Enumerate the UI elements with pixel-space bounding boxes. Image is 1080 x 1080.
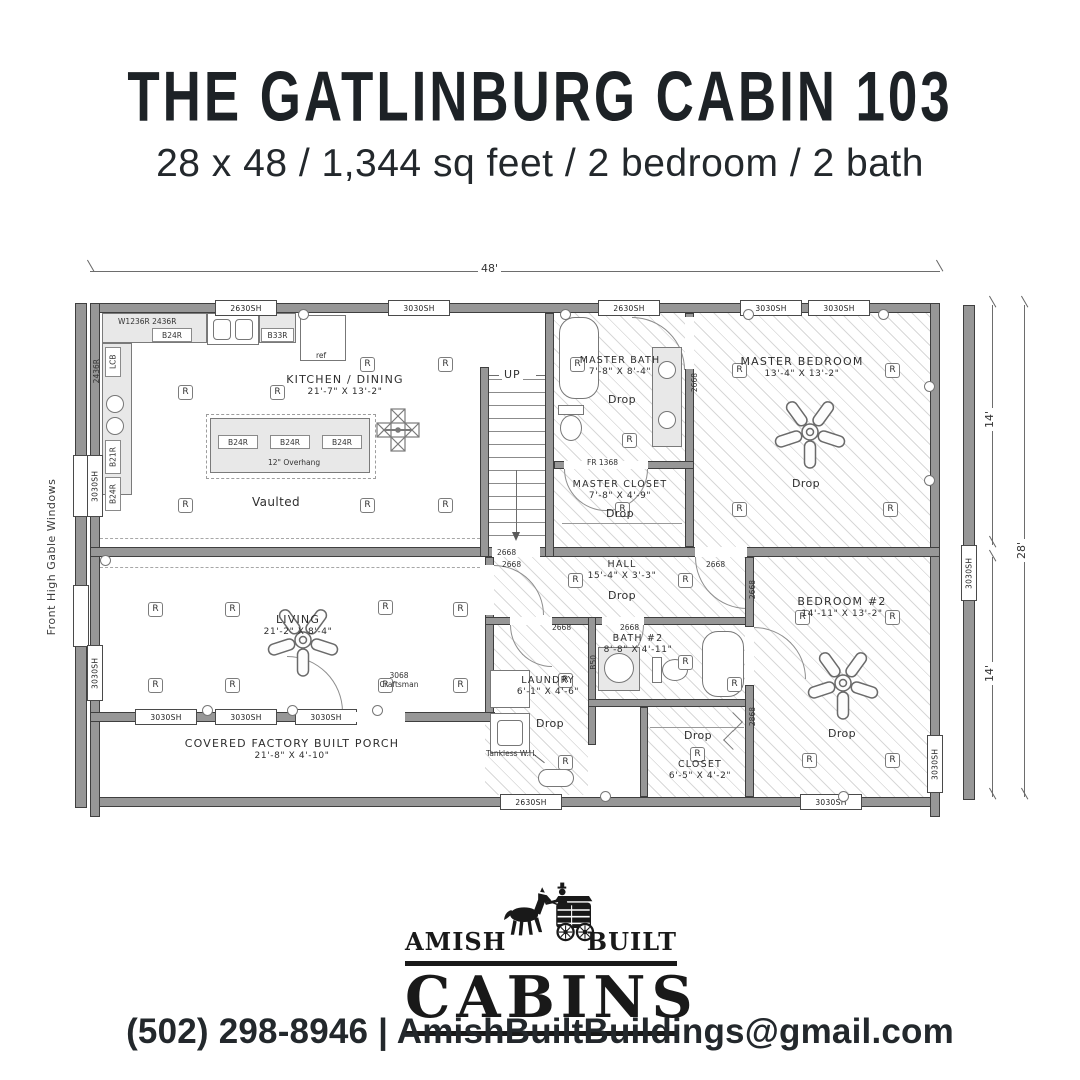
tankless-label: Tankless W.H. bbox=[486, 749, 537, 758]
recessed-light-symbol: R bbox=[453, 602, 468, 617]
header: THE GATLINBURG CABIN 103 28 x 48 / 1,344… bbox=[0, 62, 1080, 186]
ceiling-break-line bbox=[100, 567, 480, 568]
recessed-light-symbol: R bbox=[678, 655, 693, 670]
drop-label: Drop bbox=[536, 717, 564, 730]
room-label-master-bedroom: MASTER BEDROOM 13'-4" X 13'-2" bbox=[740, 355, 863, 379]
drop-label: Drop bbox=[828, 727, 856, 740]
door-label: 2668 bbox=[495, 548, 518, 557]
wall-light-symbol bbox=[878, 309, 889, 320]
recessed-light-symbol: R bbox=[225, 602, 240, 617]
cabinet-label: 2436R bbox=[92, 359, 101, 383]
island-cabinet-label: B24R bbox=[218, 435, 258, 449]
door-gap-hall bbox=[485, 565, 494, 615]
island-cabinet-label: B24R bbox=[270, 435, 310, 449]
recessed-light-symbol: R bbox=[360, 357, 375, 372]
room-name: KITCHEN / DINING bbox=[286, 373, 404, 386]
dim-upper-label: 14' bbox=[983, 408, 996, 431]
cabinet-label: B24R bbox=[105, 477, 121, 511]
gable-window bbox=[73, 585, 89, 647]
recessed-light-symbol: R bbox=[885, 610, 900, 625]
room-label-closet: CLOSET 6'-5" X 4'-2" bbox=[669, 759, 731, 781]
toilet-bowl bbox=[560, 415, 582, 441]
room-dims: 21'-7" X 13'-2" bbox=[286, 387, 404, 397]
room-dims: 21'-2" X 8'-4" bbox=[264, 627, 333, 637]
ceiling-break-line bbox=[100, 538, 480, 539]
cooktop-burner bbox=[106, 395, 124, 413]
wall-light-symbol bbox=[202, 705, 213, 716]
fan-light-symbol bbox=[376, 408, 420, 456]
staircase bbox=[489, 367, 545, 557]
door-label: 2668 bbox=[706, 560, 725, 569]
recessed-light-symbol: R bbox=[568, 573, 583, 588]
room-label-bedroom2: BEDROOM #2 14'-11" X 13'-2" bbox=[797, 595, 886, 619]
drop-label: Drop bbox=[608, 393, 636, 406]
logo-top-row: AMISH bbox=[405, 862, 677, 958]
window: 2630SH bbox=[500, 794, 562, 810]
window: 3030SH bbox=[800, 794, 862, 810]
stair-wall-right bbox=[545, 313, 554, 557]
floor-plan: 48' 14' 14' 28' Front High Gable Windows… bbox=[40, 255, 1045, 850]
wall-cabinet-label: W1236R 2436R bbox=[118, 317, 176, 326]
room-name: MASTER CLOSET bbox=[573, 479, 668, 490]
recessed-light-symbol: R bbox=[453, 678, 468, 693]
cabinet-label: B21R bbox=[105, 440, 121, 474]
window: 3030SH bbox=[388, 300, 450, 316]
vanity-sink bbox=[658, 361, 676, 379]
room-dims: 21'-8" X 4'-10" bbox=[185, 751, 399, 761]
laundry-bath-divider bbox=[588, 617, 596, 745]
room-label-master-closet: MASTER CLOSET 7'-8" X 4'-9" bbox=[573, 479, 668, 501]
dim-lower-label: 14' bbox=[983, 662, 996, 685]
cabinet-label: B24R bbox=[152, 328, 192, 342]
room-name: LAUNDRY bbox=[517, 675, 579, 686]
door-label: 2668 bbox=[690, 373, 699, 392]
recessed-light-symbol: R bbox=[678, 573, 693, 588]
bath2-bottom-wall bbox=[588, 699, 754, 707]
window: 3030SH bbox=[808, 300, 870, 316]
logo-word-right: BUILT bbox=[587, 930, 677, 958]
recessed-light-symbol: R bbox=[802, 753, 817, 768]
recessed-light-symbol: R bbox=[622, 433, 637, 448]
cooktop-burner bbox=[106, 417, 124, 435]
wall-light-symbol bbox=[838, 791, 849, 802]
recessed-light-symbol: R bbox=[438, 357, 453, 372]
wall-light-symbol bbox=[924, 475, 935, 486]
door-label: 2668 bbox=[748, 580, 757, 599]
room-dims: 7'-8" X 8'-4" bbox=[580, 367, 661, 377]
door-gap-master-bath bbox=[685, 317, 694, 369]
cabinet-code: W1236R bbox=[118, 317, 150, 326]
door-label: 2668 bbox=[552, 623, 571, 632]
cabinet-label: B33R bbox=[261, 328, 294, 342]
recessed-light-symbol: R bbox=[438, 498, 453, 513]
door-label: 3068 Craftsman bbox=[376, 671, 422, 690]
room-label-living: LIVING 21'-2" X 8'-4" bbox=[264, 613, 333, 637]
room-dims: 14'-11" X 13'-2" bbox=[797, 609, 886, 619]
cabinet-label: B50 bbox=[589, 655, 598, 670]
window: 3030SH bbox=[87, 455, 103, 517]
window: 3030SH bbox=[215, 709, 277, 725]
room-dims: 7'-8" X 4'-9" bbox=[573, 491, 668, 501]
ceiling-fan-symbol bbox=[770, 392, 850, 476]
toilet-tank bbox=[652, 657, 662, 683]
room-name: MASTER BATH bbox=[580, 355, 661, 366]
horse-and-wagon-icon bbox=[496, 864, 596, 960]
room-label-bath2: BATH #2 8'-8" X 4'-11" bbox=[604, 633, 673, 655]
closet-left-wall bbox=[640, 707, 648, 797]
brand-logo: AMISH bbox=[405, 862, 677, 1036]
room-dims: 6'-1" X 4'-6" bbox=[517, 687, 579, 697]
door-gap-bedroom2 bbox=[745, 627, 754, 683]
dim-tick bbox=[87, 260, 95, 272]
dim-tick bbox=[936, 260, 944, 272]
room-name: LIVING bbox=[264, 613, 333, 626]
window: 3030SH bbox=[135, 709, 197, 725]
drop-label: Drop bbox=[606, 507, 634, 520]
dim-width-label: 48' bbox=[478, 262, 501, 275]
cabinet-label: LCB bbox=[105, 347, 121, 377]
door-gap-laundry bbox=[510, 617, 552, 625]
wall-light-symbol bbox=[372, 705, 383, 716]
vanity-sink bbox=[658, 411, 676, 429]
kitchen-sink bbox=[207, 313, 259, 345]
room-name: BEDROOM #2 bbox=[797, 595, 886, 608]
vaulted-label: Vaulted bbox=[252, 495, 300, 509]
cabinet-code: 2436R bbox=[152, 317, 176, 326]
window: 2630SH bbox=[598, 300, 660, 316]
recessed-light-symbol: R bbox=[148, 678, 163, 693]
room-label-porch: COVERED FACTORY BUILT PORCH 21'-8" X 4'-… bbox=[185, 737, 399, 761]
bedroom2-wall-lower bbox=[745, 685, 754, 797]
recessed-light-symbol: R bbox=[178, 385, 193, 400]
stairs-direction-arrow bbox=[512, 532, 520, 541]
room-name: MASTER BEDROOM bbox=[740, 355, 863, 368]
recessed-light-symbol: R bbox=[727, 677, 742, 692]
island-cabinet-label: B24R bbox=[322, 435, 362, 449]
door-gap-master-bedroom bbox=[695, 547, 747, 557]
room-label-kitchen: KITCHEN / DINING 21'-7" X 13'-2" bbox=[286, 373, 404, 397]
stair-wall-left bbox=[480, 367, 489, 557]
recessed-light-symbol: R bbox=[732, 502, 747, 517]
room-name: CLOSET bbox=[669, 759, 731, 770]
contact-line: (502) 298-8946 | AmishBuiltBuildings@gma… bbox=[0, 1012, 1080, 1052]
wall-light-symbol bbox=[924, 381, 935, 392]
room-dims: 15'-4" X 3'-3" bbox=[588, 571, 657, 581]
recessed-light-symbol: R bbox=[885, 363, 900, 378]
wall-light-symbol bbox=[298, 309, 309, 320]
gable-window-right: 3030SH bbox=[961, 545, 977, 601]
room-name: BATH #2 bbox=[604, 633, 673, 644]
room-label-master-bath: MASTER BATH 7'-8" X 8'-4" bbox=[580, 355, 661, 377]
window: 2630SH bbox=[215, 300, 277, 316]
room-label-hall: HALL 15'-4" X 3'-3" bbox=[588, 559, 657, 581]
recessed-light-symbol: R bbox=[148, 602, 163, 617]
room-name: HALL bbox=[588, 559, 657, 570]
recessed-light-symbol: R bbox=[270, 385, 285, 400]
gable-windows-note: Front High Gable Windows bbox=[45, 407, 59, 707]
window: 3030SH bbox=[87, 645, 103, 701]
wall-light-symbol bbox=[743, 309, 754, 320]
page-subtitle: 28 x 48 / 1,344 sq feet / 2 bedroom / 2 … bbox=[0, 142, 1080, 186]
wall-light-symbol bbox=[100, 555, 111, 566]
dim-line-width bbox=[90, 271, 940, 272]
toilet-tank bbox=[558, 405, 584, 415]
recessed-light-symbol: R bbox=[178, 498, 193, 513]
dim-total-label: 28' bbox=[1015, 539, 1028, 562]
stairs-up-label: UP bbox=[502, 368, 523, 381]
drop-label: Drop bbox=[684, 729, 712, 742]
bath2-sink bbox=[604, 653, 634, 683]
refrigerator-label: ref bbox=[316, 351, 326, 360]
logo-word-left: AMISH bbox=[405, 930, 506, 958]
recessed-light-symbol: R bbox=[225, 678, 240, 693]
laundry-sink bbox=[490, 713, 530, 753]
closet-rod bbox=[562, 523, 682, 524]
room-name: COVERED FACTORY BUILT PORCH bbox=[185, 737, 399, 750]
door-label: 2668 bbox=[502, 560, 521, 569]
ceiling-fan-symbol bbox=[803, 643, 883, 727]
recessed-light-symbol: R bbox=[885, 753, 900, 768]
page-title: THE GATLINBURG CABIN 103 bbox=[127, 62, 952, 132]
room-dims: 6'-5" X 4'-2" bbox=[669, 771, 731, 781]
room-dims: 8'-8" X 4'-11" bbox=[604, 645, 673, 655]
stairs-direction-line bbox=[516, 470, 517, 532]
door-label: 2668 bbox=[620, 623, 639, 632]
wall-light-symbol bbox=[600, 791, 611, 802]
wall-light-symbol bbox=[560, 309, 571, 320]
wall-light-symbol bbox=[287, 705, 298, 716]
room-label-laundry: LAUNDRY 6'-1" X 4'-6" bbox=[517, 675, 579, 697]
drop-label: Drop bbox=[608, 589, 636, 602]
door-label: FR 1368 bbox=[585, 458, 620, 467]
recessed-light-symbol: R bbox=[558, 755, 573, 770]
recessed-light-symbol: R bbox=[378, 600, 393, 615]
recessed-light-symbol: R bbox=[883, 502, 898, 517]
island-overhang-label: 12" Overhang bbox=[268, 458, 320, 467]
window: 3030SH bbox=[927, 735, 943, 793]
recessed-light-symbol: R bbox=[360, 498, 375, 513]
door-label: 2868 bbox=[748, 707, 757, 726]
tankless-water-heater bbox=[538, 769, 574, 787]
gable-wall-left bbox=[75, 303, 87, 808]
drop-label: Drop bbox=[792, 477, 820, 490]
room-dims: 13'-4" X 13'-2" bbox=[740, 369, 863, 379]
